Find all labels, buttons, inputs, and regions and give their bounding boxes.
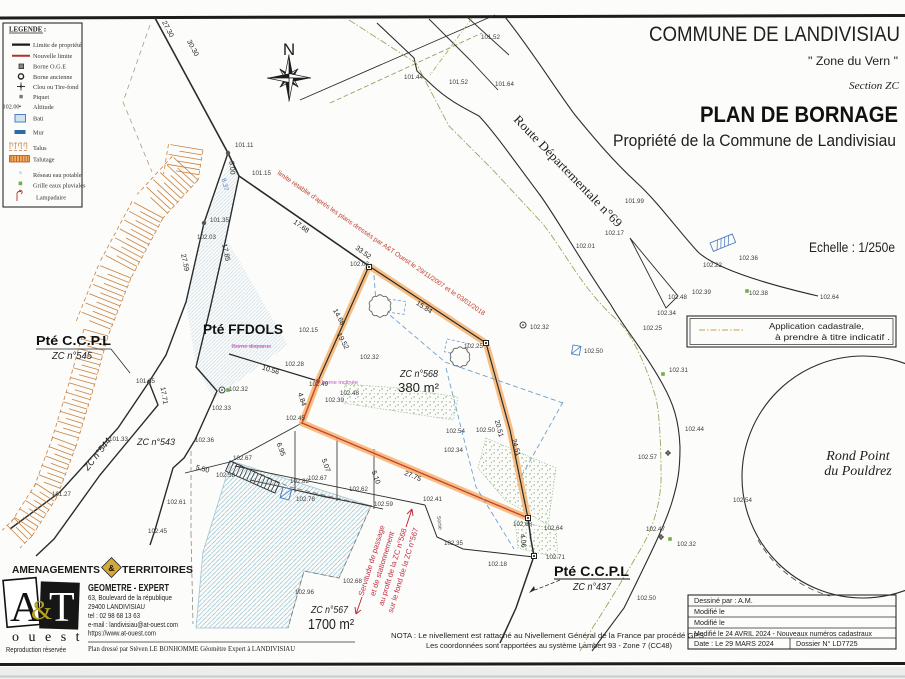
svg-text:102.35: 102.35 xyxy=(444,540,463,547)
svg-text:102.48: 102.48 xyxy=(340,390,359,397)
svg-text:102.49: 102.49 xyxy=(309,381,328,388)
svg-text:ZC n°567: ZC n°567 xyxy=(310,604,349,616)
svg-text:Modifié le: Modifié le xyxy=(694,618,725,627)
svg-text:ZC n°568: ZC n°568 xyxy=(399,368,438,380)
svg-text:PLAN DE BORNAGE: PLAN DE BORNAGE xyxy=(700,102,898,127)
svg-text:101.65: 101.65 xyxy=(136,378,155,385)
svg-text:Nouvelle limite: Nouvelle limite xyxy=(33,53,73,60)
svg-text:Dessiné par : A.M.: Dessiné par : A.M. xyxy=(694,596,753,605)
svg-text:Borne O.G.E: Borne O.G.E xyxy=(33,64,66,71)
svg-text:Piquet: Piquet xyxy=(33,94,49,101)
svg-text:102.68: 102.68 xyxy=(343,578,362,585)
svg-text:Borne ancienne: Borne ancienne xyxy=(33,74,73,81)
svg-text:Clou ou Tire-fond: Clou ou Tire-fond xyxy=(33,84,79,91)
svg-text:102.36: 102.36 xyxy=(739,255,758,262)
svg-text:102.45: 102.45 xyxy=(148,528,167,535)
svg-text:" Zone du Vern ": " Zone du Vern " xyxy=(808,56,898,68)
svg-text:102.32: 102.32 xyxy=(530,324,549,331)
svg-text:102.58: 102.58 xyxy=(216,472,235,479)
svg-text:102.39: 102.39 xyxy=(325,397,344,404)
svg-text:Reproduction réservée: Reproduction réservée xyxy=(6,647,66,654)
svg-text:101.44: 101.44 xyxy=(404,74,423,81)
svg-text:102.71: 102.71 xyxy=(546,554,565,561)
svg-text:102.33: 102.33 xyxy=(212,405,231,412)
svg-text:Mur: Mur xyxy=(33,129,45,136)
svg-text:Modifié le: Modifié le xyxy=(694,607,725,616)
svg-text:Pté C.C.P.L: Pté C.C.P.L xyxy=(554,564,629,579)
svg-text:o u e s t: o u e s t xyxy=(12,630,83,645)
svg-text:102.47: 102.47 xyxy=(646,526,665,533)
svg-text:102.03: 102.03 xyxy=(197,234,216,241)
svg-text:102.31: 102.31 xyxy=(669,367,688,374)
svg-text:du Pouldrez: du Pouldrez xyxy=(824,464,892,479)
svg-text:102.68: 102.68 xyxy=(513,521,532,528)
svg-text:tel : 02 98 68 13 63: tel : 02 98 68 13 63 xyxy=(88,611,140,620)
svg-text:102.32: 102.32 xyxy=(229,386,248,393)
svg-text:Pté C.C.P.L: Pté C.C.P.L xyxy=(36,333,111,348)
svg-text:101.99: 101.99 xyxy=(625,198,644,205)
svg-text:102.50: 102.50 xyxy=(476,427,495,434)
svg-text:102.32: 102.32 xyxy=(360,354,379,361)
svg-text:ZC n°437: ZC n°437 xyxy=(572,582,611,593)
svg-text:Modifié le 24 AVRIL 2024 - Nou: Modifié le 24 AVRIL 2024 - Nouveaux numé… xyxy=(694,629,872,638)
svg-text:Bati: Bati xyxy=(33,116,44,123)
svg-text:TERRITOIRES: TERRITOIRES xyxy=(122,564,193,576)
svg-text:102.44: 102.44 xyxy=(685,426,704,433)
svg-text:102.82: 102.82 xyxy=(290,478,309,485)
svg-text:102.32: 102.32 xyxy=(677,541,696,548)
svg-text:à prendre à titre indicatif .: à prendre à titre indicatif . xyxy=(775,332,890,342)
svg-text:NOTA : Le nivellement est ratt: NOTA : Le nivellement est rattaché au Ni… xyxy=(391,631,704,640)
svg-text:102.36: 102.36 xyxy=(195,437,214,444)
svg-text:101.33: 101.33 xyxy=(109,436,128,443)
svg-text:ZC n°545: ZC n°545 xyxy=(51,351,92,362)
svg-text:63, Boulevard de la république: 63, Boulevard de la république xyxy=(88,593,172,602)
svg-text:T: T xyxy=(49,585,75,631)
svg-text:102.64: 102.64 xyxy=(820,294,839,301)
svg-text:https://www.at-ouest.com: https://www.at-ouest.com xyxy=(88,629,156,638)
svg-text:102.41: 102.41 xyxy=(423,496,442,503)
svg-text:Plan dressé par Stèven LE BONH: Plan dressé par Stèven LE BONHOMME Géomè… xyxy=(88,645,296,653)
svg-text:Altitude: Altitude xyxy=(33,104,54,111)
svg-text:102.54: 102.54 xyxy=(733,497,752,504)
svg-text:102.34: 102.34 xyxy=(657,310,676,317)
svg-text:102.01: 102.01 xyxy=(576,243,595,250)
svg-text:102.28: 102.28 xyxy=(285,361,304,368)
svg-text:Grille eaux pluviales: Grille eaux pluviales xyxy=(33,183,86,190)
svg-text:102.15: 102.15 xyxy=(299,327,318,334)
svg-text:102.38: 102.38 xyxy=(749,290,768,297)
svg-text:102.17: 102.17 xyxy=(605,230,624,237)
svg-text:Lampadaire: Lampadaire xyxy=(36,194,66,201)
svg-text:102.96: 102.96 xyxy=(295,589,314,596)
svg-text:102.50: 102.50 xyxy=(584,348,603,355)
svg-text:Propriété de la Commune de Lan: Propriété de la Commune de Landivisiau xyxy=(613,132,896,150)
svg-text:Borne disparue: Borne disparue xyxy=(232,344,271,350)
svg-text:3.00: 3.00 xyxy=(227,161,235,175)
svg-text:101.35: 101.35 xyxy=(210,217,229,224)
svg-text:Date : Le 29 MARS 2024: Date : Le 29 MARS 2024 xyxy=(694,639,774,648)
svg-text:101.64: 101.64 xyxy=(495,81,514,88)
svg-text:AMENAGEMENTS: AMENAGEMENTS xyxy=(12,564,100,576)
svg-text:102.67: 102.67 xyxy=(308,475,327,482)
svg-text:4.06: 4.06 xyxy=(518,534,526,548)
svg-text:1700 m²: 1700 m² xyxy=(308,617,354,633)
svg-text:Réseau eau potable: Réseau eau potable xyxy=(33,172,82,179)
svg-text:102.62: 102.62 xyxy=(349,486,368,493)
svg-text:LEGENDE :: LEGENDE : xyxy=(9,27,46,34)
svg-text:102.18: 102.18 xyxy=(488,561,507,568)
svg-text:101.52: 101.52 xyxy=(481,34,500,41)
svg-text:102.64: 102.64 xyxy=(544,525,563,532)
svg-text:COMMUNE DE LANDIVISIAU: COMMUNE DE LANDIVISIAU xyxy=(649,23,900,46)
svg-text:&: & xyxy=(108,563,114,573)
svg-text:Application cadastrale,: Application cadastrale, xyxy=(769,321,864,331)
svg-text:380 m²: 380 m² xyxy=(398,380,440,395)
svg-text:102.45: 102.45 xyxy=(286,415,305,422)
svg-text:102.22: 102.22 xyxy=(703,262,722,269)
svg-text:102.57: 102.57 xyxy=(638,454,657,461)
svg-text:Pté FFDOLS: Pté FFDOLS xyxy=(203,321,283,337)
svg-text:Talus: Talus xyxy=(33,145,47,152)
svg-text:ZC n°543: ZC n°543 xyxy=(136,437,176,448)
svg-text:Dossier N° LD7725: Dossier N° LD7725 xyxy=(796,639,858,648)
svg-text:102.54: 102.54 xyxy=(446,428,465,435)
svg-text:102.61: 102.61 xyxy=(167,499,186,506)
svg-text:102.03: 102.03 xyxy=(350,261,369,268)
svg-text:102.00: 102.00 xyxy=(3,103,20,110)
svg-text:Talutage: Talutage xyxy=(33,156,55,163)
svg-text:Limite de propriété: Limite de propriété xyxy=(33,42,82,49)
svg-text:102.48: 102.48 xyxy=(668,294,687,301)
svg-text:102.67: 102.67 xyxy=(233,455,252,462)
svg-text:102.25: 102.25 xyxy=(464,343,483,350)
svg-text:102.39: 102.39 xyxy=(692,289,711,296)
svg-text:101.15: 101.15 xyxy=(252,170,271,177)
svg-text:Echelle : 1/250e: Echelle : 1/250e xyxy=(809,240,895,255)
svg-text:102.59: 102.59 xyxy=(374,501,393,508)
svg-text:101.52: 101.52 xyxy=(449,79,468,86)
svg-text:Section ZC: Section ZC xyxy=(849,81,900,92)
svg-text:101.11: 101.11 xyxy=(235,142,254,149)
svg-text:Les coordonnées sont rapportée: Les coordonnées sont rapportées au systè… xyxy=(426,641,672,650)
svg-text:102.50: 102.50 xyxy=(637,595,656,602)
svg-text:Rond Point: Rond Point xyxy=(825,449,890,464)
svg-text:102.78: 102.78 xyxy=(296,496,315,503)
svg-text:29400 LANDIVISIAU: 29400 LANDIVISIAU xyxy=(88,602,145,611)
svg-text:101.27: 101.27 xyxy=(52,491,71,498)
svg-text:N: N xyxy=(283,40,295,59)
svg-text:102.34: 102.34 xyxy=(444,447,463,454)
svg-text:102.25: 102.25 xyxy=(643,325,662,332)
